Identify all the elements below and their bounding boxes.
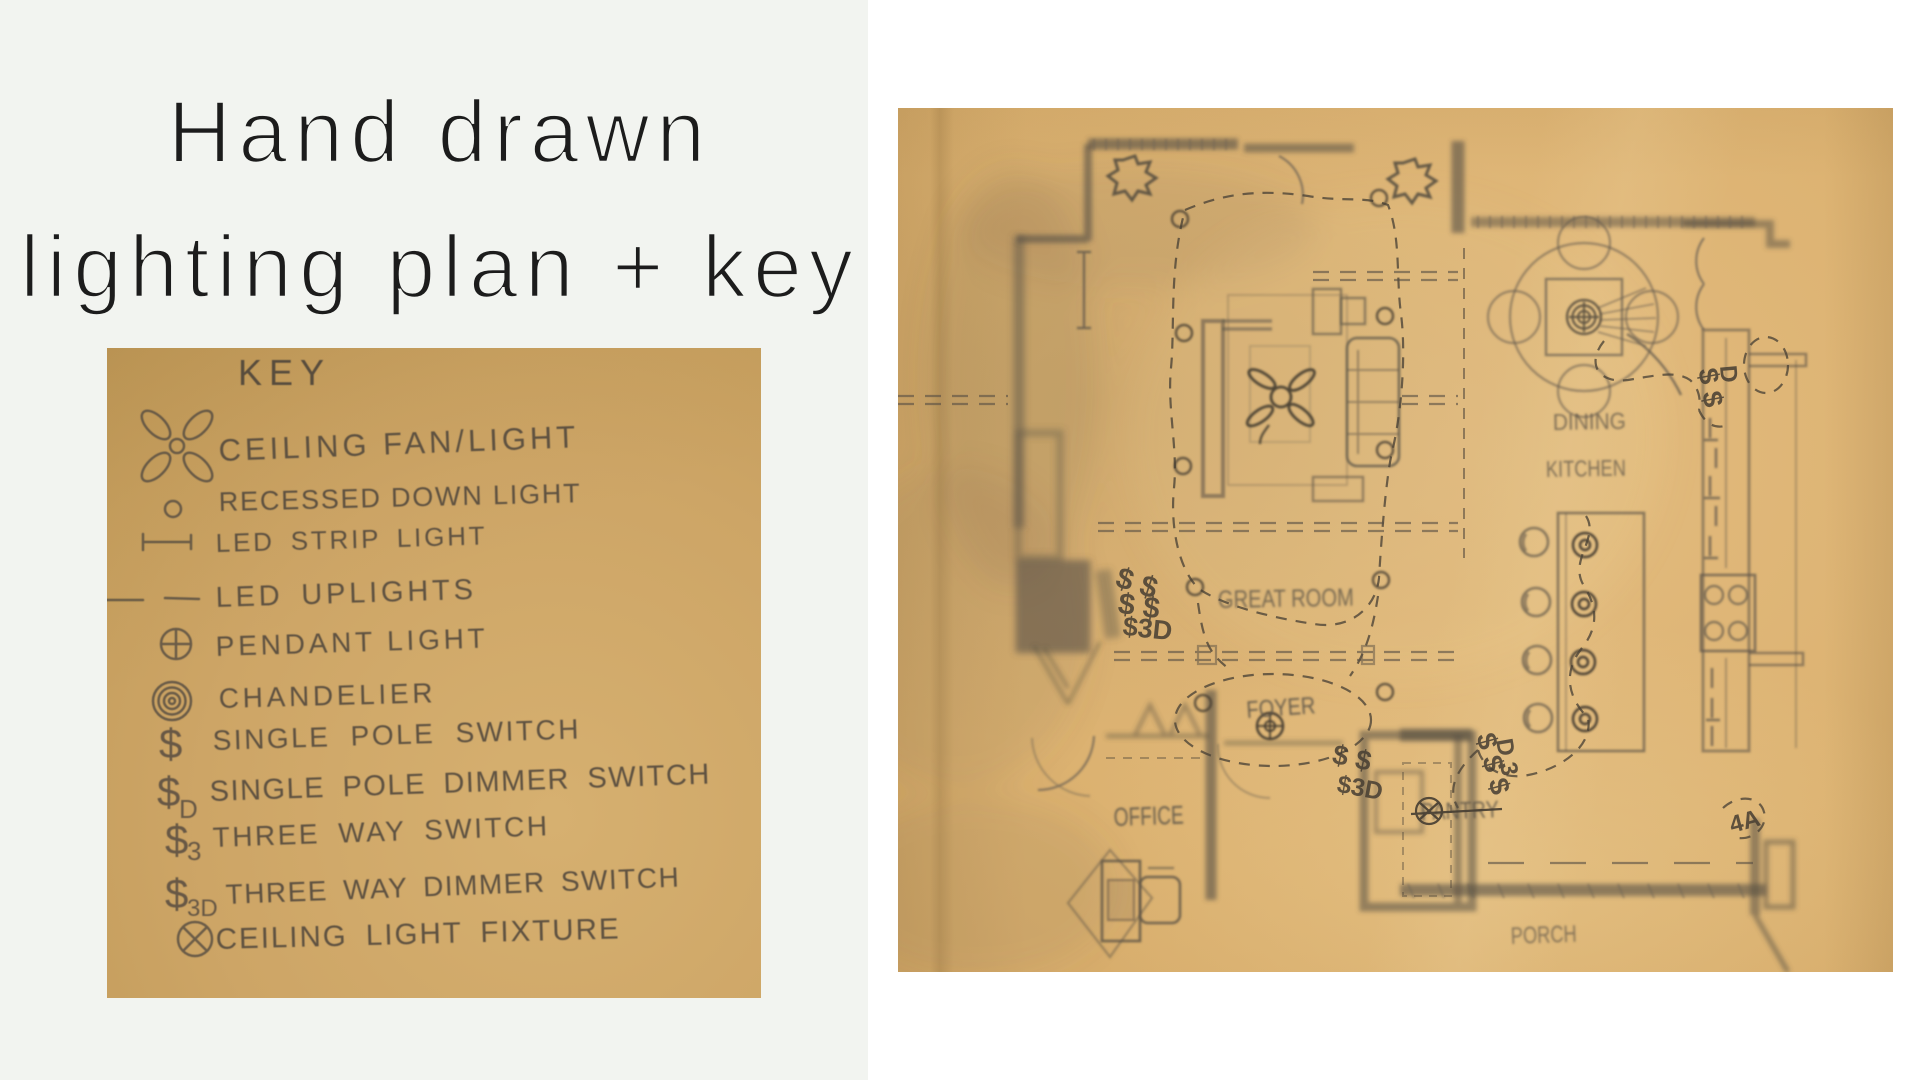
svg-text:$: $: [165, 870, 188, 917]
svg-text:$3D: $3D: [1121, 611, 1173, 646]
svg-text:$: $: [165, 816, 188, 863]
svg-text:RECESSED DOWN LIGHT: RECESSED DOWN LIGHT: [218, 478, 581, 517]
svg-text:LED UPLIGHTS: LED UPLIGHTS: [215, 574, 477, 614]
svg-text:$: $: [157, 768, 180, 815]
svg-text:LED STRIP LIGHT: LED STRIP LIGHT: [215, 520, 487, 558]
svg-text:PORCH: PORCH: [1510, 921, 1577, 950]
svg-text:3: 3: [187, 836, 201, 866]
svg-text:$ $: $ $: [1330, 739, 1375, 778]
svg-text:D: D: [1714, 364, 1742, 384]
svg-text:GREAT ROOM: GREAT ROOM: [1218, 584, 1354, 614]
svg-text:THREE WAY SWITCH: THREE WAY SWITCH: [212, 810, 550, 853]
svg-text:CHANDELIER: CHANDELIER: [218, 677, 436, 714]
svg-text:KITCHEN: KITCHEN: [1546, 455, 1626, 482]
svg-text:3D: 3D: [187, 895, 218, 922]
svg-text:CEILING FAN/LIGHT: CEILING FAN/LIGHT: [218, 419, 580, 468]
svg-text:SINGLE POLE DIMMER SWITCH: SINGLE POLE DIMMER SWITCH: [209, 759, 711, 808]
svg-text:CEILING LIGHT FIXTURE: CEILING LIGHT FIXTURE: [215, 912, 621, 956]
svg-text:DINING: DINING: [1553, 408, 1626, 435]
svg-text:PENDANT LIGHT: PENDANT LIGHT: [215, 622, 489, 662]
svg-text:THREE WAY DIMMER SWITCH: THREE WAY DIMMER SWITCH: [225, 862, 681, 910]
svg-text:KEY: KEY: [238, 352, 331, 393]
svg-text:$: $: [159, 720, 182, 767]
svg-text:OFFICE: OFFICE: [1113, 800, 1184, 832]
svg-text:FOYER: FOYER: [1246, 692, 1317, 724]
svg-text:SINGLE POLE SWITCH: SINGLE POLE SWITCH: [212, 713, 581, 756]
